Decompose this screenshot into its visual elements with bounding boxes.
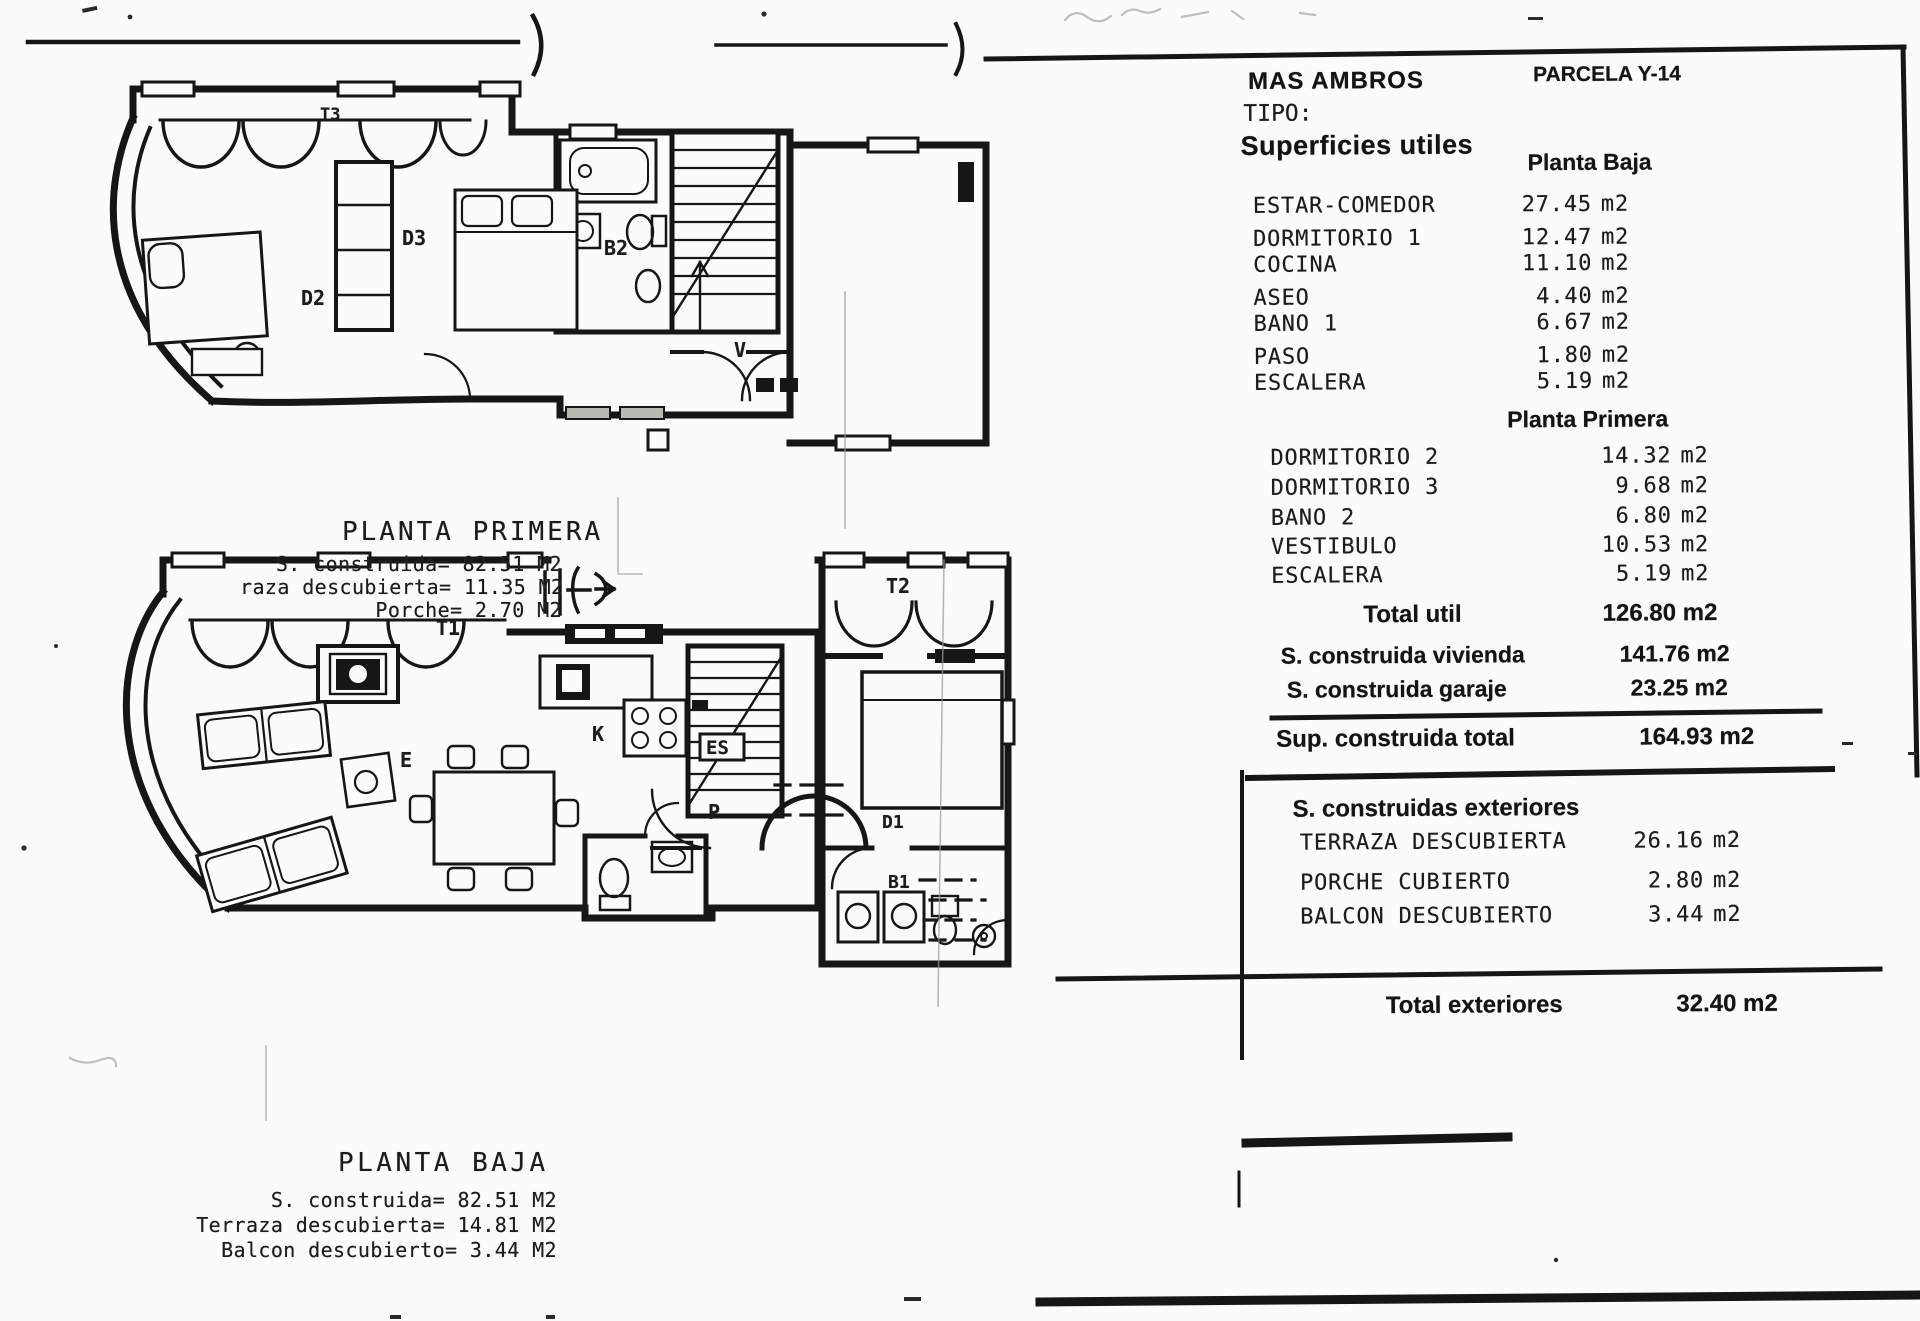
table-row: VESTIBULO 10.53 m2: [1271, 532, 1723, 560]
room-label-d1: D1: [882, 812, 904, 833]
room-label-t1: T1: [436, 616, 460, 640]
stat-line: Balcon descubierto= 3.44 M2: [175, 1238, 557, 1263]
room-label-e: E: [400, 748, 412, 772]
table-row: PORCHE CUBIERTO 2.80 m2: [1300, 868, 1755, 896]
table-row: ESTAR-COMEDOR 27.45 m2: [1253, 192, 1643, 219]
table-row: ESCALERA 5.19 m2: [1271, 561, 1723, 589]
exteriores-title: S. construidas exteriores: [1292, 794, 1579, 824]
construida-vivienda-row: S. construida vivienda 141.76 m2: [1281, 640, 1730, 670]
stat-line: raza descubierta= 11.35 M2: [240, 576, 562, 599]
parcel-label: PARCELA Y-14: [1533, 62, 1681, 87]
table-row: PASO 1.80 m2: [1254, 343, 1644, 370]
plan-baja-title: PLANTA BAJA: [338, 1148, 549, 1178]
room-label-d3: D3: [402, 226, 426, 250]
room-label-es: ES: [706, 737, 729, 759]
total-exteriores-row: Total exteriores 32.40 m2: [1386, 990, 1778, 1020]
stat-line: Terraza descubierta= 14.81 M2: [175, 1213, 557, 1238]
table-row: ESCALERA 5.19 m2: [1254, 369, 1644, 396]
room-label-t2: T2: [886, 574, 910, 598]
plan-primera-title: PLANTA PRIMERA: [342, 517, 603, 547]
construida-garaje-row: S. construida garaje 23.25 m2: [1287, 674, 1728, 704]
planta-baja-header: Planta Baja: [1528, 148, 1652, 176]
table-row: TERRAZA DESCUBIERTA 26.16 m2: [1300, 828, 1755, 856]
surface-table-panel: MAS AMBROS PARCELA Y-14 TIPO: Superficie…: [0, 0, 1920, 1321]
sup-construida-total-row: Sup. construida total 164.93 m2: [1276, 723, 1754, 754]
room-label-d2: D2: [301, 286, 325, 310]
room-label-t3: T3: [320, 105, 340, 125]
scanned-floorplan-document: MAS AMBROS PARCELA Y-14 TIPO: Superficie…: [0, 0, 1920, 1321]
planta-primera-header: Planta Primera: [1507, 405, 1668, 433]
table-row: DORMITORIO 3 9.68 m2: [1271, 473, 1723, 501]
room-label-k: K: [592, 722, 604, 746]
table-row: ASEO 4.40 m2: [1253, 284, 1643, 311]
table-row: DORMITORIO 2 14.32 m2: [1270, 443, 1722, 471]
plan-primera-stats: S. construida= 82.51 M2 raza descubierta…: [240, 553, 562, 622]
table-row: COCINA 11.10 m2: [1253, 251, 1643, 278]
plan-baja-stats: S. construida= 82.51 M2 Terraza descubie…: [175, 1188, 557, 1263]
table-row: BALCON DESCUBIERTO 3.44 m2: [1300, 902, 1755, 930]
table-row: BANO 1 6.67 m2: [1254, 310, 1644, 337]
room-label-v: V: [734, 338, 746, 362]
superficies-title: Superficies utiles: [1240, 130, 1473, 162]
table-row: DORMITORIO 1 12.47 m2: [1253, 225, 1643, 252]
stat-line: S. construida= 82.51 M2: [175, 1188, 557, 1213]
project-title: MAS AMBROS: [1248, 67, 1424, 96]
room-label-p: P: [708, 800, 720, 824]
room-label-b2: B2: [604, 236, 628, 260]
stat-line: Porche= 2.70 M2: [240, 599, 562, 622]
tipo-label: TIPO:: [1243, 101, 1312, 127]
total-util-row: Total util 126.80 m2: [1363, 599, 1717, 629]
room-label-b1: B1: [888, 872, 910, 893]
stat-line: S. construida= 82.51 M2: [240, 553, 562, 576]
table-row: BANO 2 6.80 m2: [1271, 503, 1723, 531]
